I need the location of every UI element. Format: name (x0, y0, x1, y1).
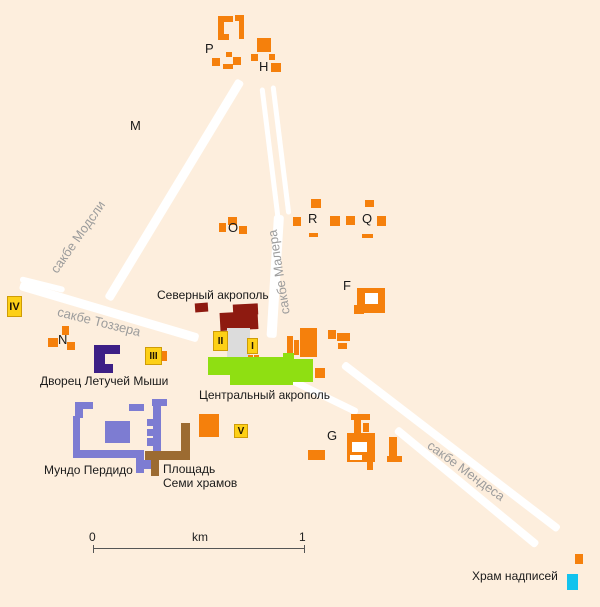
north-acropolis-mound (195, 303, 209, 313)
mundo-perdido-north-bar (129, 404, 144, 411)
southeast-mound (575, 554, 583, 564)
group-P-bracket-bottom (218, 34, 229, 40)
letter-P: P (205, 42, 214, 56)
mundo-perdido-step-3 (147, 438, 153, 446)
temple-V: V (234, 424, 248, 438)
tikal-site-map: IVIIIIIIVPHMORQFNGСеверный акропольЦентр… (0, 0, 600, 607)
letter-N: N (58, 333, 67, 347)
scalebar-line (93, 548, 304, 549)
group-F-step (354, 305, 364, 314)
group-G-neck-side (363, 423, 369, 432)
seven-temples-stem (151, 459, 159, 476)
group-Q-bar-bottom (362, 234, 373, 238)
label-seven-plaza-2: Семи храмов (163, 477, 237, 490)
scalebar-tick-end (304, 545, 305, 553)
letter-R: R (308, 212, 317, 226)
east-cluster-3 (338, 343, 347, 349)
group-H-mound-3 (271, 63, 281, 72)
group-G-stem (367, 460, 373, 470)
label-north-acropolis: Северный акрополь (157, 289, 269, 302)
central-acropolis-3 (288, 359, 313, 382)
group-G-east-foot (387, 456, 402, 462)
scalebar-tick-start (93, 545, 94, 553)
group-Q-mound-top (365, 200, 374, 207)
label-causeway-maudslay: сакбе Модсли (48, 198, 108, 275)
seven-temples-east-wall (181, 423, 190, 453)
mundo-perdido-south-wall (73, 450, 138, 458)
mundo-perdido-step-2 (147, 429, 153, 436)
group-H-mound-1 (251, 54, 258, 61)
label-mundo-perdido: Мундо Пердидо (44, 464, 133, 477)
letter-Q: Q (362, 212, 372, 226)
letter-O: O (228, 221, 238, 235)
central-acropolis-4 (283, 353, 294, 360)
group-G-court-1 (352, 442, 367, 452)
group-P-mound-3 (223, 64, 233, 69)
group-R-mound-left (293, 217, 301, 226)
label-causeway-mendes: сакбе Мендеса (425, 439, 507, 504)
group-P-mound-2 (212, 58, 220, 66)
group-R-mound-mid-1 (330, 216, 340, 226)
group-Q-mound-right (377, 216, 386, 226)
east-plaza-bar-2 (294, 340, 299, 355)
central-acropolis-2 (230, 372, 293, 385)
east-plaza-main (300, 328, 317, 357)
group-P-right-wall (239, 15, 244, 39)
temple-of-inscriptions-marker (567, 574, 578, 590)
causeway-mendes-lower-2 (393, 426, 539, 549)
group-H-mound-2 (269, 54, 275, 60)
group-G-west-bar (308, 450, 325, 460)
label-inscriptions: Храм надписей (472, 570, 558, 583)
bat-palace-bottom (94, 364, 113, 373)
group-N-mound-2 (48, 338, 58, 347)
group-R-bar-bottom (309, 233, 318, 237)
label-central-acropolis: Центральный акрополь (199, 389, 330, 402)
temple-V-platform (199, 414, 219, 437)
east-plaza-south-mound (315, 368, 325, 378)
temple-III: III (145, 347, 162, 365)
group-P-mound-1 (226, 52, 232, 57)
scalebar-zero: 0 (89, 530, 96, 544)
east-cluster-2 (337, 333, 350, 341)
temple-I: I (247, 338, 258, 354)
mundo-perdido-east-wall (153, 400, 161, 451)
group-G-east-bar (389, 437, 397, 458)
label-seven-plaza-1: Площадь (163, 463, 215, 476)
mundo-perdido-south-foot (143, 460, 151, 469)
temple-II: II (213, 331, 228, 351)
group-G-court-2 (350, 455, 362, 460)
group-O-mound-1 (219, 223, 226, 232)
letter-H: H (259, 60, 268, 74)
east-cluster-1 (328, 330, 336, 339)
mundo-perdido-pyramid (105, 421, 130, 443)
scalebar-unit: km (192, 530, 208, 544)
scalebar-one: 1 (299, 530, 306, 544)
group-O-mound-3 (239, 226, 247, 234)
group-R-mound-top (311, 199, 321, 208)
group-R-mound-mid-2 (346, 216, 355, 225)
group-N-mound-3 (67, 342, 75, 350)
temple-IV: IV (7, 296, 22, 317)
letter-M: M (130, 119, 141, 133)
mundo-perdido-step-1 (147, 419, 153, 426)
label-bat-palace: Дворец Летучей Мыши (40, 375, 168, 388)
group-P-mound-4 (233, 57, 241, 65)
causeway-maudslay (104, 78, 244, 302)
group-F-courtyard (365, 293, 378, 304)
letter-G: G (327, 429, 337, 443)
letter-F: F (343, 279, 351, 293)
group-H-pyramid (257, 38, 271, 52)
